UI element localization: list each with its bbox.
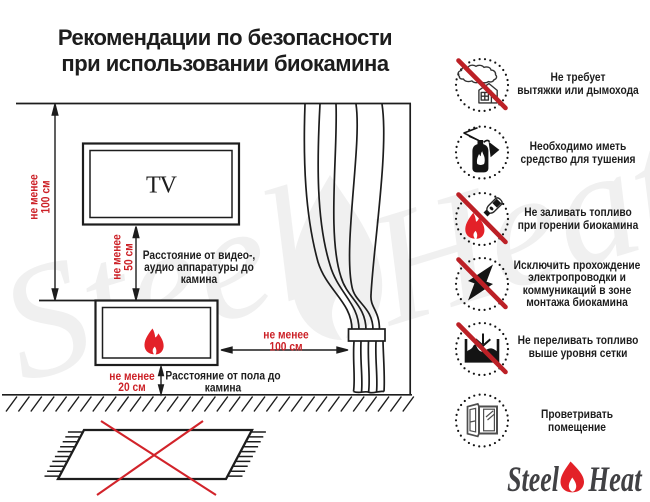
svg-text:TV: TV	[146, 173, 178, 199]
